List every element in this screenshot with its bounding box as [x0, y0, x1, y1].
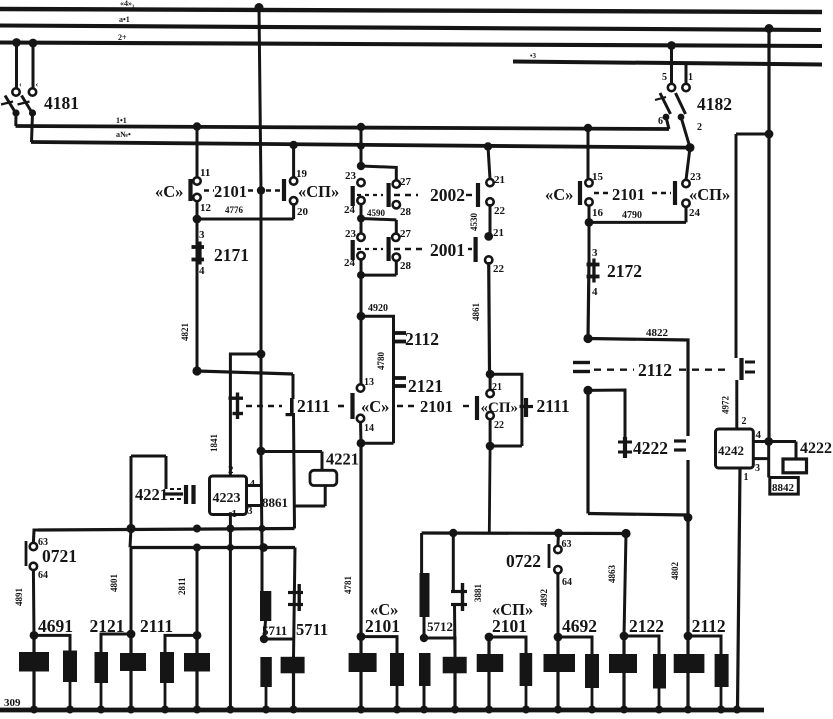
svg-text:21: 21: [493, 227, 504, 239]
svg-text:2101: 2101: [365, 616, 400, 636]
svg-text:4863: 4863: [607, 565, 617, 584]
svg-text:5711: 5711: [296, 620, 328, 639]
svg-text:4891: 4891: [14, 588, 24, 607]
svg-text:3: 3: [592, 247, 598, 259]
svg-text:4: 4: [756, 429, 762, 441]
svg-text:4781: 4781: [343, 576, 353, 595]
svg-text:0721: 0721: [42, 546, 77, 566]
svg-text:12: 12: [200, 202, 212, 214]
svg-text:a№•: a№•: [116, 130, 131, 139]
svg-text:5: 5: [662, 72, 667, 83]
svg-text:«С»: «С»: [361, 397, 389, 416]
svg-text:4790: 4790: [622, 210, 642, 221]
svg-text:4801: 4801: [109, 574, 119, 593]
svg-text:2112: 2112: [638, 360, 672, 380]
svg-text:5712: 5712: [427, 619, 453, 634]
svg-text:4780: 4780: [376, 352, 386, 371]
svg-text:2: 2: [742, 416, 747, 427]
svg-text:3881: 3881: [473, 584, 483, 603]
svg-text:5711: 5711: [262, 623, 287, 638]
svg-text:1: 1: [232, 508, 238, 520]
svg-text:2111: 2111: [537, 396, 570, 416]
svg-text:3: 3: [248, 506, 253, 517]
svg-text:3: 3: [199, 229, 205, 241]
svg-text:«С»: «С»: [155, 182, 183, 201]
svg-text:‹: ‹: [36, 80, 39, 89]
svg-text:«4»₁: «4»₁: [120, 0, 135, 8]
svg-text:2171: 2171: [214, 245, 249, 265]
svg-text:4861: 4861: [471, 303, 481, 322]
svg-text:22: 22: [494, 205, 506, 217]
svg-text:14: 14: [364, 423, 374, 434]
svg-text:13: 13: [364, 377, 374, 388]
svg-text:4182: 4182: [697, 94, 732, 114]
svg-text:2112: 2112: [692, 616, 726, 636]
svg-text:22: 22: [493, 263, 505, 275]
svg-text:24: 24: [344, 257, 356, 269]
svg-text:8861: 8861: [262, 495, 288, 510]
svg-text:28: 28: [400, 206, 412, 218]
svg-text:1: 1: [744, 472, 749, 483]
svg-text:2101: 2101: [492, 616, 527, 636]
svg-text:4242: 4242: [718, 443, 744, 458]
svg-text:64: 64: [38, 570, 48, 581]
svg-text:4221: 4221: [326, 450, 359, 469]
svg-text:4181: 4181: [44, 93, 79, 113]
svg-text:27: 27: [400, 228, 412, 240]
svg-text:2111: 2111: [140, 616, 173, 636]
svg-text:2811: 2811: [177, 577, 187, 595]
svg-text:0722: 0722: [506, 551, 541, 571]
svg-text:23: 23: [690, 171, 702, 183]
svg-text:2112: 2112: [405, 329, 439, 349]
svg-text:1•1: 1•1: [116, 116, 127, 125]
svg-text:4222: 4222: [800, 440, 832, 457]
svg-text:4821: 4821: [180, 323, 190, 342]
svg-text:24: 24: [344, 204, 356, 216]
svg-text:1: 1: [688, 72, 693, 83]
svg-text:2101: 2101: [214, 182, 247, 201]
svg-text:309: 309: [4, 697, 21, 709]
svg-text:1841: 1841: [209, 434, 219, 453]
svg-text:23: 23: [345, 228, 357, 240]
svg-text:4892: 4892: [539, 589, 549, 608]
svg-text:2172: 2172: [607, 261, 642, 281]
svg-text:4590: 4590: [367, 208, 386, 218]
svg-text:4802: 4802: [670, 562, 680, 581]
svg-text:3: 3: [755, 463, 760, 474]
svg-text:20: 20: [297, 206, 309, 218]
svg-text:2101: 2101: [420, 397, 453, 416]
svg-text:23: 23: [345, 170, 357, 182]
svg-text:«С»: «С»: [545, 185, 573, 204]
svg-text:6: 6: [658, 116, 663, 127]
svg-text:4691: 4691: [38, 616, 73, 636]
svg-text:4822: 4822: [646, 327, 669, 339]
svg-text:4776: 4776: [225, 205, 244, 215]
svg-text:4972: 4972: [721, 396, 731, 415]
svg-text:2002: 2002: [430, 185, 465, 205]
svg-text:4530: 4530: [469, 213, 479, 232]
svg-text:28: 28: [400, 260, 412, 272]
svg-text:21: 21: [494, 174, 505, 186]
svg-text:4920: 4920: [368, 303, 388, 314]
svg-text:11: 11: [200, 167, 210, 179]
svg-text:a•1: a•1: [119, 15, 130, 24]
svg-text:16: 16: [592, 207, 604, 219]
svg-text:63: 63: [562, 539, 572, 550]
svg-text:2101: 2101: [612, 185, 645, 204]
svg-text:64: 64: [562, 577, 572, 588]
svg-text:«СП»: «СП»: [298, 182, 339, 201]
svg-text:19: 19: [296, 168, 308, 180]
svg-text:2111: 2111: [297, 396, 330, 416]
svg-text:2: 2: [697, 122, 702, 133]
svg-text:2121: 2121: [408, 376, 443, 396]
svg-text:2+: 2+: [118, 33, 127, 42]
svg-text:4223: 4223: [213, 491, 241, 506]
svg-text:«СП»: «СП»: [689, 185, 730, 204]
svg-text:22: 22: [494, 420, 504, 431]
svg-text:4: 4: [199, 265, 205, 277]
svg-text:27: 27: [400, 176, 412, 188]
svg-text:2001: 2001: [430, 240, 465, 260]
svg-text:4: 4: [592, 286, 598, 298]
svg-text:2: 2: [228, 464, 234, 476]
svg-text:4222: 4222: [633, 438, 668, 458]
svg-text:2122: 2122: [629, 616, 664, 636]
svg-text:4692: 4692: [562, 616, 597, 636]
svg-text:24: 24: [689, 207, 701, 219]
svg-text:‹: ‹: [19, 80, 22, 89]
svg-text:•3: •3: [530, 52, 536, 60]
svg-text:8842: 8842: [772, 482, 795, 494]
